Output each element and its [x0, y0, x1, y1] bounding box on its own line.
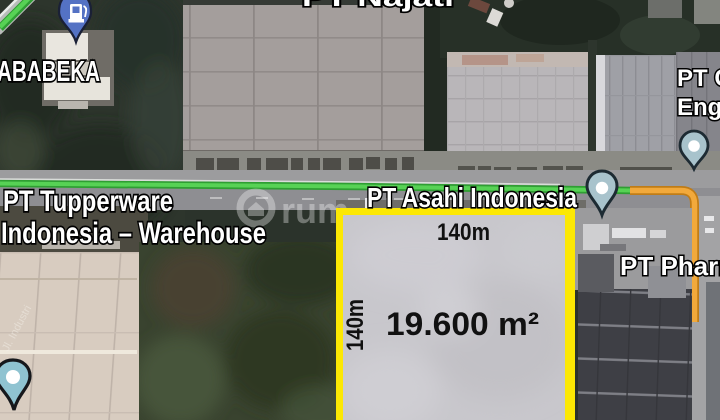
- svg-text:Engine: Engine: [677, 94, 720, 121]
- svg-text:PT Pharma: PT Pharma: [620, 251, 720, 281]
- svg-text:140m: 140m: [342, 299, 369, 351]
- svg-text:PT Najati: PT Najati: [302, 0, 454, 12]
- svg-text:PT Asahi Indonesia: PT Asahi Indonesia: [367, 182, 577, 213]
- svg-text:PT Cit: PT Cit: [677, 65, 720, 92]
- svg-text:19.600 m²: 19.600 m²: [386, 306, 539, 342]
- svg-text:Indonesia – Warehouse: Indonesia – Warehouse: [1, 217, 266, 250]
- svg-text:ABABEKA: ABABEKA: [0, 56, 100, 88]
- svg-text:PT Tupperware: PT Tupperware: [3, 185, 173, 218]
- svg-text:140m: 140m: [437, 219, 490, 246]
